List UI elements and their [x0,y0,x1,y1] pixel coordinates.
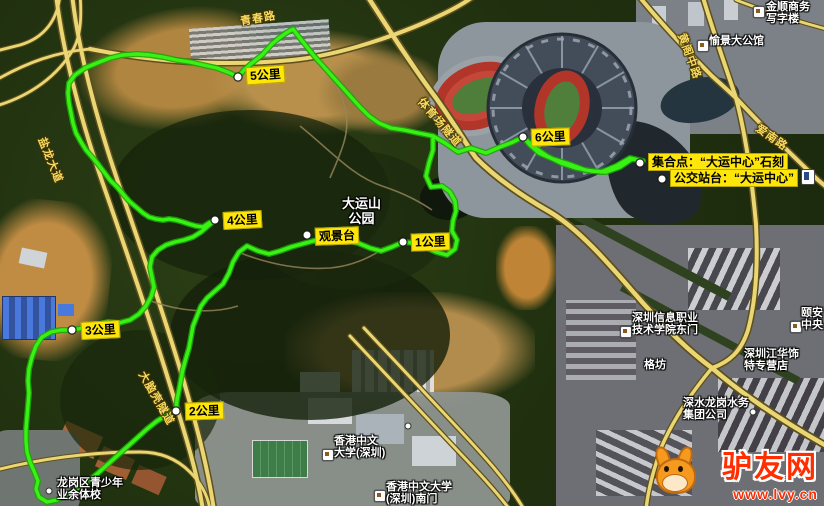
school-poi-icon [620,326,632,338]
km-marker-2km: 2公里 [185,401,224,420]
watermark-site-url: www.lvy.cn [722,486,818,502]
poi-jianghua-store: 深圳江华饰特专营店 [744,348,799,372]
route-marker-dot-bus-stop [658,175,667,184]
poi-jinshun-office: 金顺商务写字楼 [766,1,810,25]
poi-dot [750,409,757,416]
poi-yujing-mansion: 愉景大公馆 [709,35,764,47]
watermark-site-name: 驴友网 [722,442,818,486]
poi-dot [405,423,412,430]
satellite-map: 1公里 2公里 3公里 4公里 5公里 6公里 观景台 集合点：“大运中心”石刻… [0,0,824,506]
poi-dot [46,488,53,495]
poi-dayunshan-park: 大运山公园 [342,196,381,226]
building-poi-icon [697,40,709,52]
km-marker-6km: 6公里 [531,127,570,146]
poi-gefang: 格坊 [644,359,666,371]
university-poi-icon [322,449,334,461]
route-marker-dot-2km [172,407,181,416]
poi-cuhk-south-gate: 香港中文大学(深圳)南门 [386,481,452,505]
poi-sziit-east-gate: 深圳信息职业技术学院东门 [632,312,698,336]
office-poi-icon [753,6,765,18]
poi-cuhk-shenzhen: 香港中文大学(深圳) [334,435,385,459]
poi-sports-school: 龙岗区青少年业余体校 [57,477,123,501]
km-marker-5km: 5公里 [245,65,285,86]
route-marker-dot-1km [399,238,408,247]
donkey-logo [648,448,700,500]
bus-stop-label: 公交站台：“大运中心” [670,169,798,187]
poi-yian-central: 颐安中央 [801,307,823,331]
route-marker-dot-5km [234,73,243,82]
km-marker-1km: 1公里 [411,232,450,251]
route-marker-dot-viewpoint [303,231,312,240]
university-poi-icon [374,490,386,502]
gas-station-icon [801,169,815,185]
viewpoint-label: 观景台 [315,226,360,246]
km-marker-3km: 3公里 [81,320,121,340]
route-marker-dot-meeting-point [636,159,645,168]
route-marker-dot-4km [211,216,220,225]
park-trails [148,78,432,311]
route-marker-dot-3km [68,326,77,335]
watermark: 驴友网 www.lvy.cn [722,442,818,502]
route-marker-dot-6km [519,133,528,142]
poi-shenshui-water: 深水龙岗水务集团公司 [683,397,749,421]
km-marker-4km: 4公里 [223,210,263,230]
